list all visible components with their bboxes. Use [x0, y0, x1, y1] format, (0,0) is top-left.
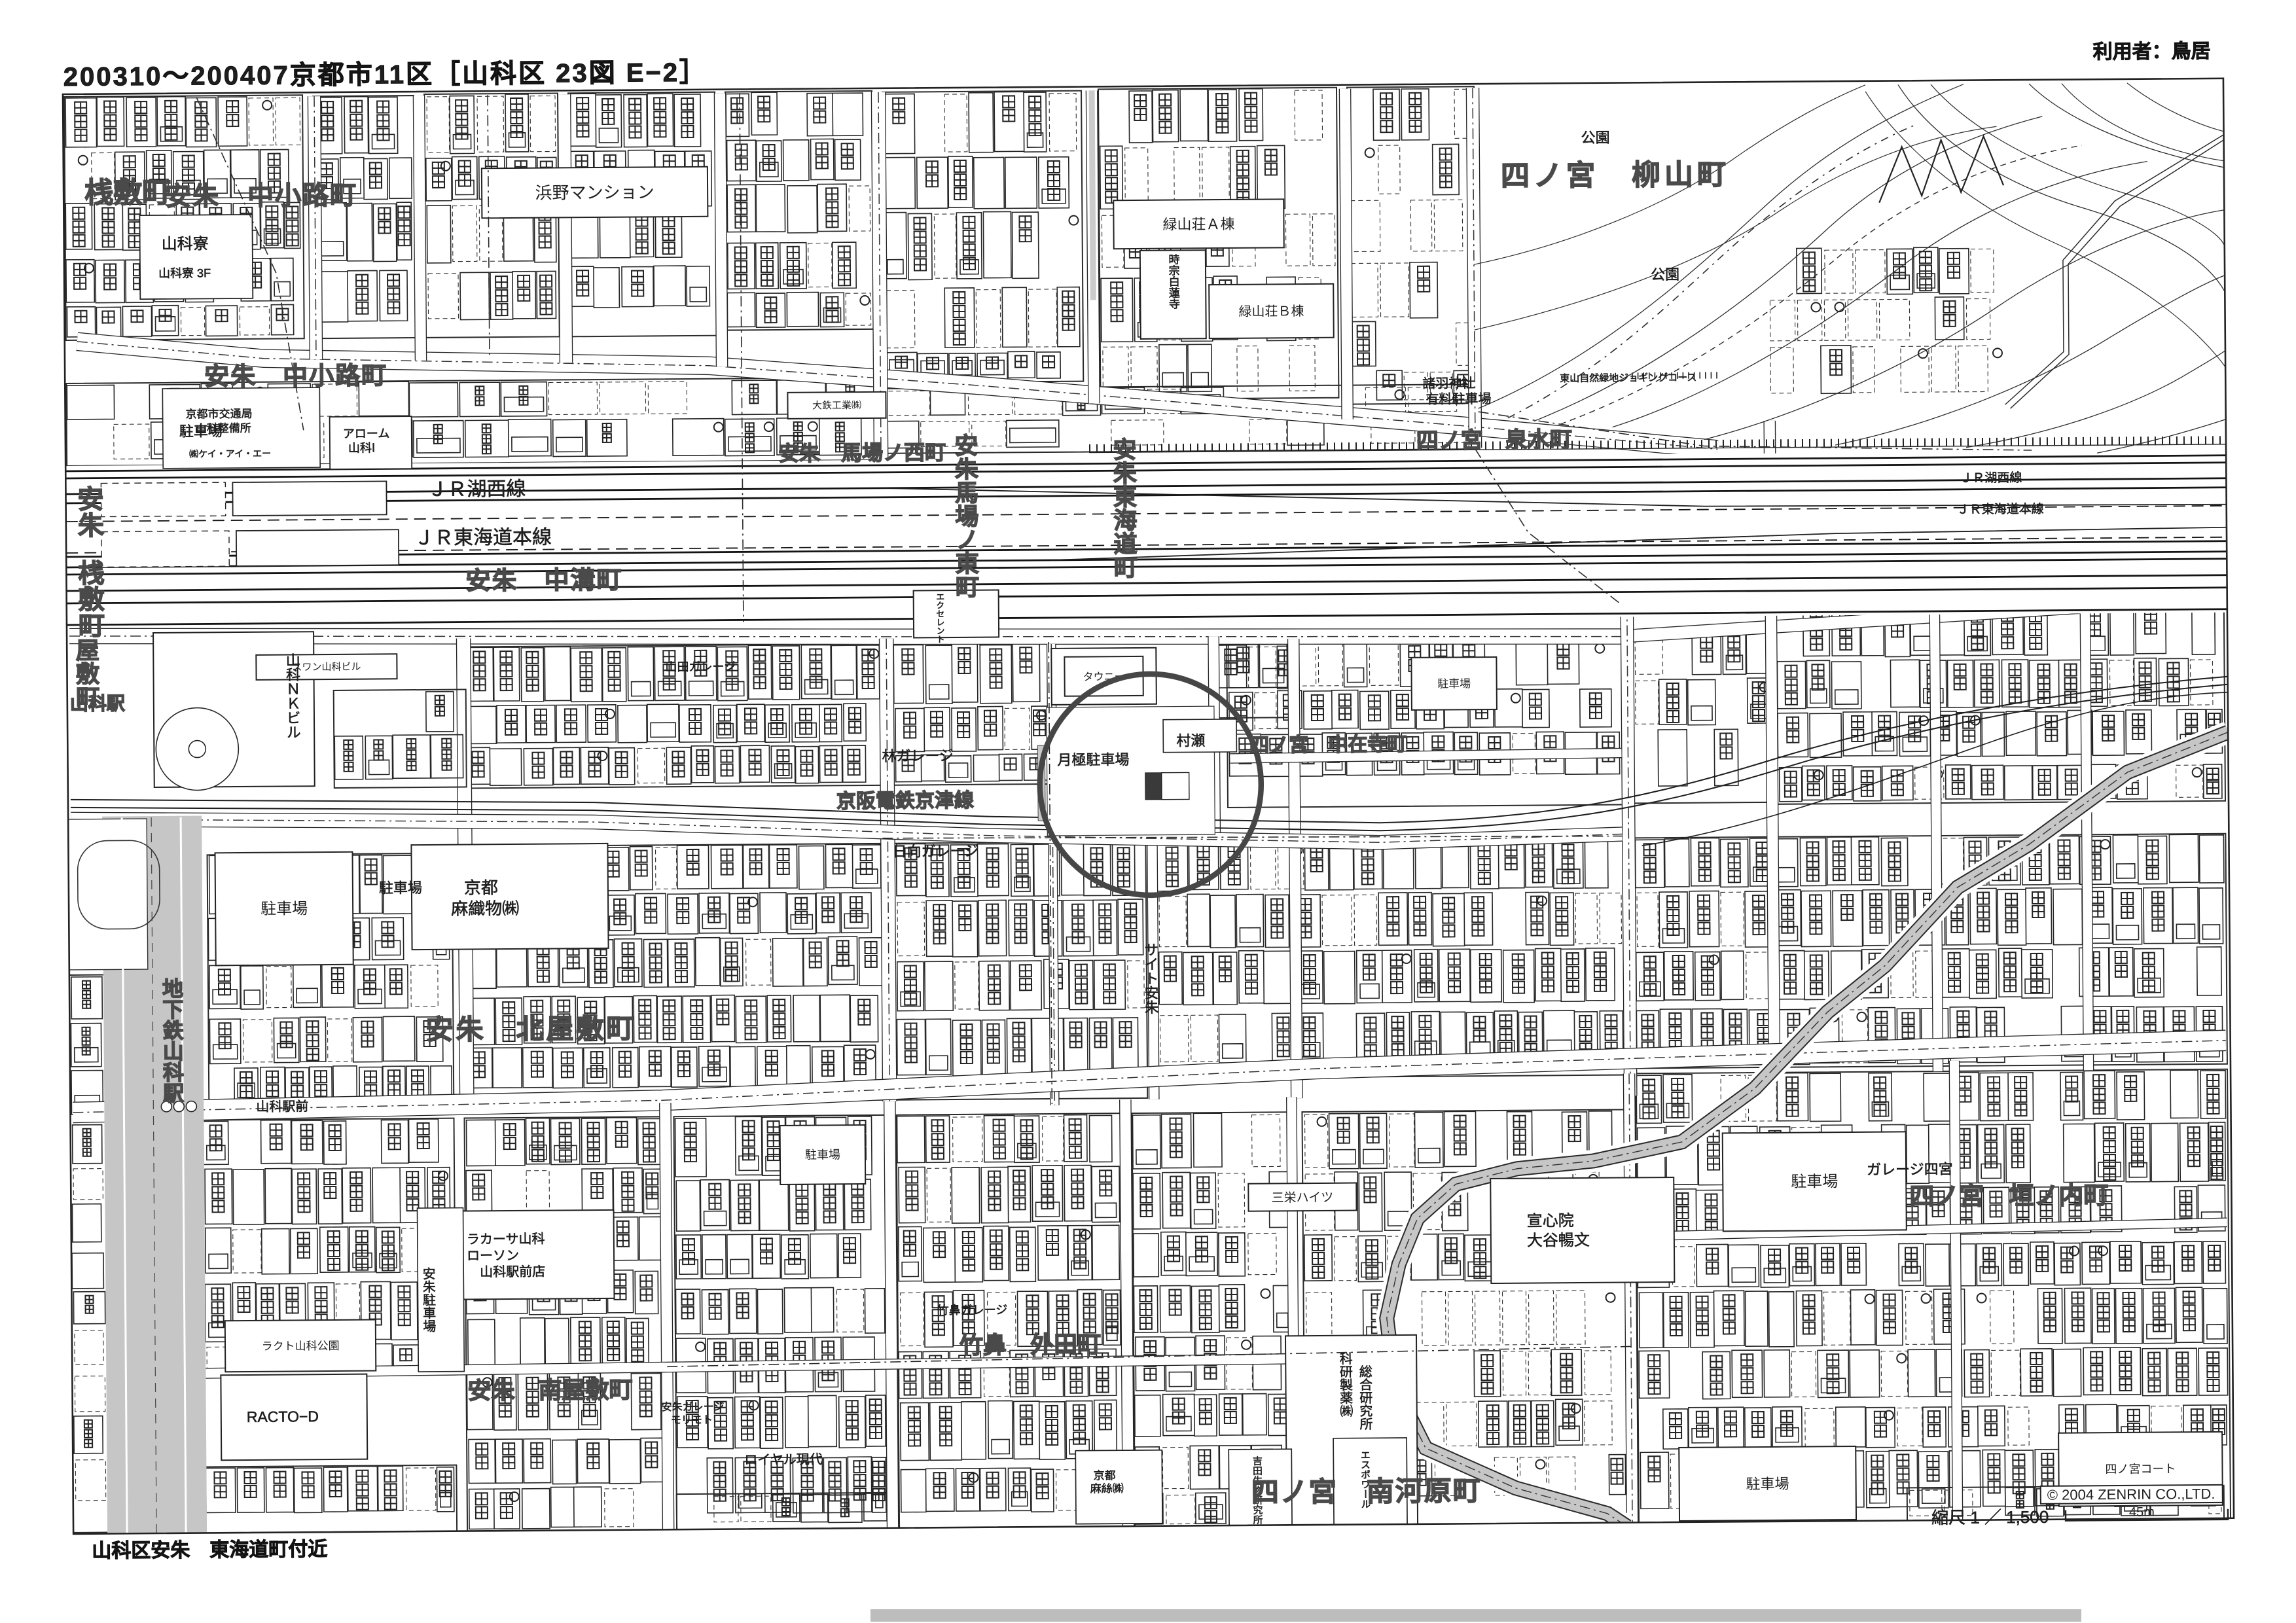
svg-text:時宗白蓮寺: 時宗白蓮寺 — [1166, 253, 1179, 309]
svg-text:ＪＲ湖西線: ＪＲ湖西線 — [427, 478, 526, 501]
svg-text:安朱 中小路町: 安朱 中小路町 — [165, 181, 357, 211]
svg-text:四ノ宮 泉水町: 四ノ宮 泉水町 — [1416, 427, 1572, 454]
svg-text:山科Ⅰ: 山科Ⅰ — [348, 442, 375, 455]
svg-text:サイト安朱: サイト安朱 — [1142, 942, 1159, 1015]
svg-text:駐車場: 駐車場 — [805, 1148, 840, 1161]
svg-text:安朱駐車場: 安朱駐車場 — [420, 1266, 436, 1332]
svg-text:日向ガレージ: 日向ガレージ — [892, 843, 978, 860]
svg-text:大鉄工業㈱: 大鉄工業㈱ — [812, 400, 861, 412]
svg-text:安朱 中溝町: 安朱 中溝町 — [465, 567, 622, 596]
svg-text:京都: 京都 — [464, 878, 498, 897]
svg-text:東山自然緑地ジョギングコース: 東山自然緑地ジョギングコース — [1560, 372, 1696, 385]
svg-text:麻絲㈱: 麻絲㈱ — [1090, 1482, 1124, 1495]
svg-text:地下鉄山科駅: 地下鉄山科駅 — [160, 978, 184, 1104]
svg-text:公園: 公園 — [1581, 130, 1609, 146]
svg-text:三栄ハイツ: 三栄ハイツ — [1272, 1190, 1334, 1205]
svg-text:山田ガレージ: 山田ガレージ — [665, 660, 736, 673]
svg-text:駐車場: 駐車場 — [379, 880, 422, 896]
svg-text:ロイヤル現代: ロイヤル現代 — [744, 1452, 823, 1468]
svg-text:安朱東海道町: 安朱東海道町 — [1109, 437, 1138, 579]
svg-text:ラクト山科公園: ラクト山科公園 — [261, 1340, 339, 1353]
svg-text:駐車場: 駐車場 — [1791, 1173, 1838, 1191]
svg-text:モリモト: モリモト — [671, 1415, 713, 1426]
svg-text:月極駐車場: 月極駐車場 — [1057, 751, 1129, 768]
svg-text:京都市交通局: 京都市交通局 — [186, 408, 253, 421]
svg-text:宣心院: 宣心院 — [1527, 1212, 1574, 1230]
svg-text:縮尺 1 ／ 1,500: 縮尺 1 ／ 1,500 — [1931, 1507, 2049, 1527]
svg-text:浜野マンション: 浜野マンション — [535, 182, 655, 202]
svg-text:京阪電鉄京津線: 京阪電鉄京津線 — [836, 789, 974, 813]
svg-text:駐車場: 駐車場 — [1437, 677, 1471, 690]
svg-text:山科駅前: 山科駅前 — [256, 1099, 308, 1115]
svg-text:ラカーサ山科: ラカーサ山科 — [467, 1232, 545, 1247]
svg-text:安朱 南屋敷町: 安朱 南屋敷町 — [467, 1376, 632, 1404]
svg-text:安朱 馬場ノ西町: 安朱 馬場ノ西町 — [778, 440, 946, 465]
svg-text:総合研究所: 総合研究所 — [1357, 1364, 1372, 1431]
svg-text:ローソン: ローソン — [467, 1249, 519, 1264]
svg-text:山科寮: 山科寮 — [162, 235, 209, 253]
svg-text:スワン山科ビル: スワン山科ビル — [292, 662, 361, 673]
svg-text:駐車場: 駐車場 — [1746, 1476, 1789, 1492]
svg-text:諸羽神社: 諸羽神社 — [1422, 376, 1475, 391]
svg-text:© 2004 ZENRIN CO.,LTD.: © 2004 ZENRIN CO.,LTD. — [2047, 1486, 2215, 1503]
svg-text:200310〜200407京都市11区［山科区 23図 E−: 200310〜200407京都市11区［山科区 23図 E−2］ — [63, 58, 708, 92]
svg-text:桟敷町: 桟敷町 — [74, 560, 105, 639]
svg-text:麻織物㈱: 麻織物㈱ — [451, 899, 519, 919]
svg-text:駐車場: 駐車場 — [260, 900, 308, 918]
svg-text:安朱 中小路町: 安朱 中小路町 — [204, 362, 387, 391]
svg-text:アローム: アローム — [343, 427, 390, 440]
svg-text:林ガレージ: 林ガレージ — [882, 747, 954, 764]
svg-text:ガレージ四宮: ガレージ四宮 — [1867, 1161, 1953, 1178]
svg-text:緑山荘Ｂ棟: 緑山荘Ｂ棟 — [1238, 304, 1304, 319]
svg-text:安朱: 安朱 — [73, 486, 104, 539]
svg-text:竹鼻 外田町: 竹鼻 外田町 — [960, 1330, 1101, 1359]
svg-text:ＪＲ東海道本線: ＪＲ東海道本線 — [1957, 502, 2044, 517]
svg-text:四ノ宮 柳山町: 四ノ宮 柳山町 — [1501, 158, 1730, 192]
svg-text:利用者：鳥居: 利用者：鳥居 — [2092, 41, 2210, 63]
svg-text:山科寮 3F: 山科寮 3F — [158, 266, 211, 280]
svg-text:山科駅: 山科駅 — [70, 693, 125, 714]
svg-text:山科区安朱 東海道町付近: 山科区安朱 東海道町付近 — [92, 1539, 327, 1562]
svg-text:RACTO−D: RACTO−D — [247, 1408, 319, 1425]
svg-text:エクセレント: エクセレント — [935, 592, 945, 643]
svg-text:山科駅前店: 山科駅前店 — [480, 1264, 545, 1280]
svg-text:四ノ宮コート: 四ノ宮コート — [2105, 1462, 2176, 1476]
svg-text:公園: 公園 — [1651, 266, 1679, 283]
svg-text:科研製薬㈱: 科研製薬㈱ — [1337, 1351, 1353, 1418]
svg-text:山科ＮＫビル: 山科ＮＫビル — [284, 652, 301, 739]
svg-text:四ノ宮 中在寺町: 四ノ宮 中在寺町 — [1249, 734, 1407, 757]
svg-text:四ノ宮 南河原町: 四ノ宮 南河原町 — [1251, 1475, 1482, 1508]
svg-text:安朱馬場ノ東町: 安朱馬場ノ東町 — [951, 433, 979, 598]
svg-text:45m: 45m — [2129, 1505, 2155, 1520]
svg-text:桟敷町: 桟敷町 — [84, 177, 171, 209]
svg-text:有料駐車場: 有料駐車場 — [1426, 391, 1491, 407]
svg-text:ＪＲ東海道本線: ＪＲ東海道本線 — [414, 527, 552, 550]
svg-text:緑山荘Ａ棟: 緑山荘Ａ棟 — [1162, 216, 1234, 233]
svg-text:ＪＲ湖西線: ＪＲ湖西線 — [1960, 471, 2022, 486]
svg-text:村瀬: 村瀬 — [1176, 732, 1205, 749]
svg-text:大谷暢文: 大谷暢文 — [1527, 1232, 1590, 1250]
svg-text:竹鼻ガレージ: 竹鼻ガレージ — [937, 1303, 1008, 1317]
svg-text:駐車場: 駐車場 — [179, 423, 223, 439]
svg-text:京都: 京都 — [1093, 1469, 1115, 1482]
svg-text:安朱 北屋敷町: 安朱 北屋敷町 — [425, 1013, 636, 1045]
svg-text:四ノ宮 垣ノ内町: 四ノ宮 垣ノ内町 — [1909, 1182, 2108, 1211]
svg-text:㈱ケイ・アイ・エー: ㈱ケイ・アイ・エー — [189, 448, 271, 459]
svg-text:安朱ガレージ: 安朱ガレージ — [662, 1401, 725, 1414]
